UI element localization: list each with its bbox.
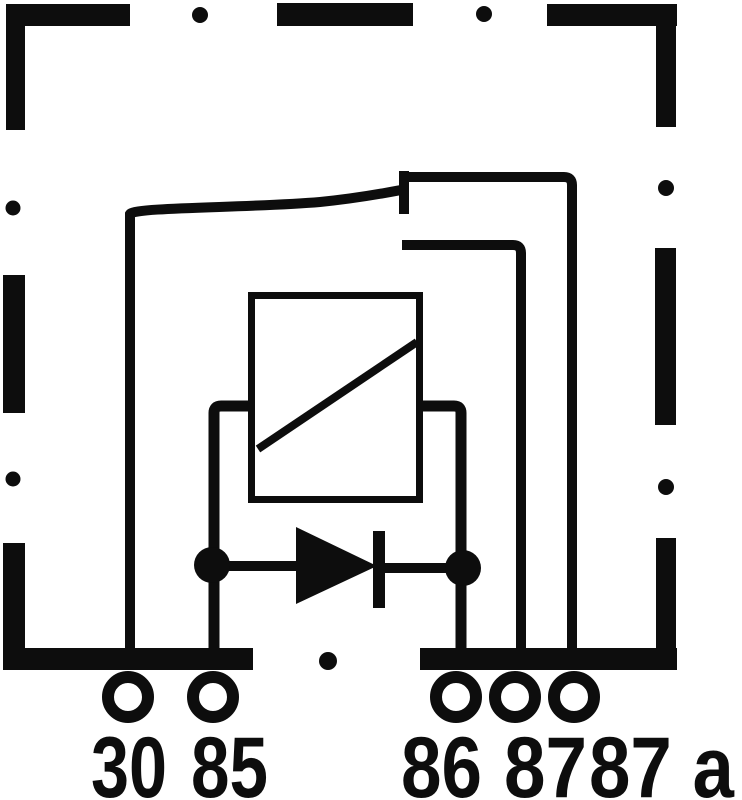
junction-dot-86 xyxy=(445,550,481,586)
pin-86 xyxy=(436,677,476,717)
diode-triangle xyxy=(296,527,377,604)
relay-coil xyxy=(252,296,420,500)
border-top-dot-1 xyxy=(192,7,208,23)
terminal-label-85: 85 xyxy=(191,720,268,800)
border-left-dash xyxy=(3,275,25,413)
border-right-dot-2 xyxy=(658,479,674,495)
diode-cathode-bar xyxy=(373,531,385,608)
border-top-right-corner-vertical xyxy=(656,4,676,127)
pin-85 xyxy=(193,677,233,717)
terminal-pins xyxy=(108,677,594,717)
terminal-label-87: 87 xyxy=(504,720,587,800)
border-top-dash xyxy=(277,3,413,26)
border-top-left-corner-vertical xyxy=(6,4,25,130)
suppression-diode xyxy=(194,527,481,608)
border-right-dot-1 xyxy=(658,180,674,196)
terminal-labels: 30 85 86 87 87 a xyxy=(91,720,735,800)
border-right-dash xyxy=(655,248,676,425)
pin-87 xyxy=(495,677,535,717)
coil-lead-terminal-86 xyxy=(420,406,461,652)
pin-87a xyxy=(554,677,594,717)
border-left-dot-1 xyxy=(6,201,21,216)
junction-dot-85 xyxy=(194,547,230,583)
terminal-label-86: 86 xyxy=(401,720,482,800)
border-bottom-dot xyxy=(319,652,337,670)
border-top-dot-2 xyxy=(476,6,492,22)
terminal-label-87a: 87 a xyxy=(589,720,735,800)
relay-schematic-svg: 30 85 86 87 87 a xyxy=(0,0,742,800)
pin-30 xyxy=(108,677,148,717)
border-bottom-right-corner-vertical xyxy=(656,538,676,670)
terminal-label-30: 30 xyxy=(91,720,167,800)
coil-lead-terminal-85 xyxy=(214,406,252,652)
border-left-dot-2 xyxy=(6,472,21,487)
relay-diagram-canvas: 30 85 86 87 87 a xyxy=(0,0,742,800)
